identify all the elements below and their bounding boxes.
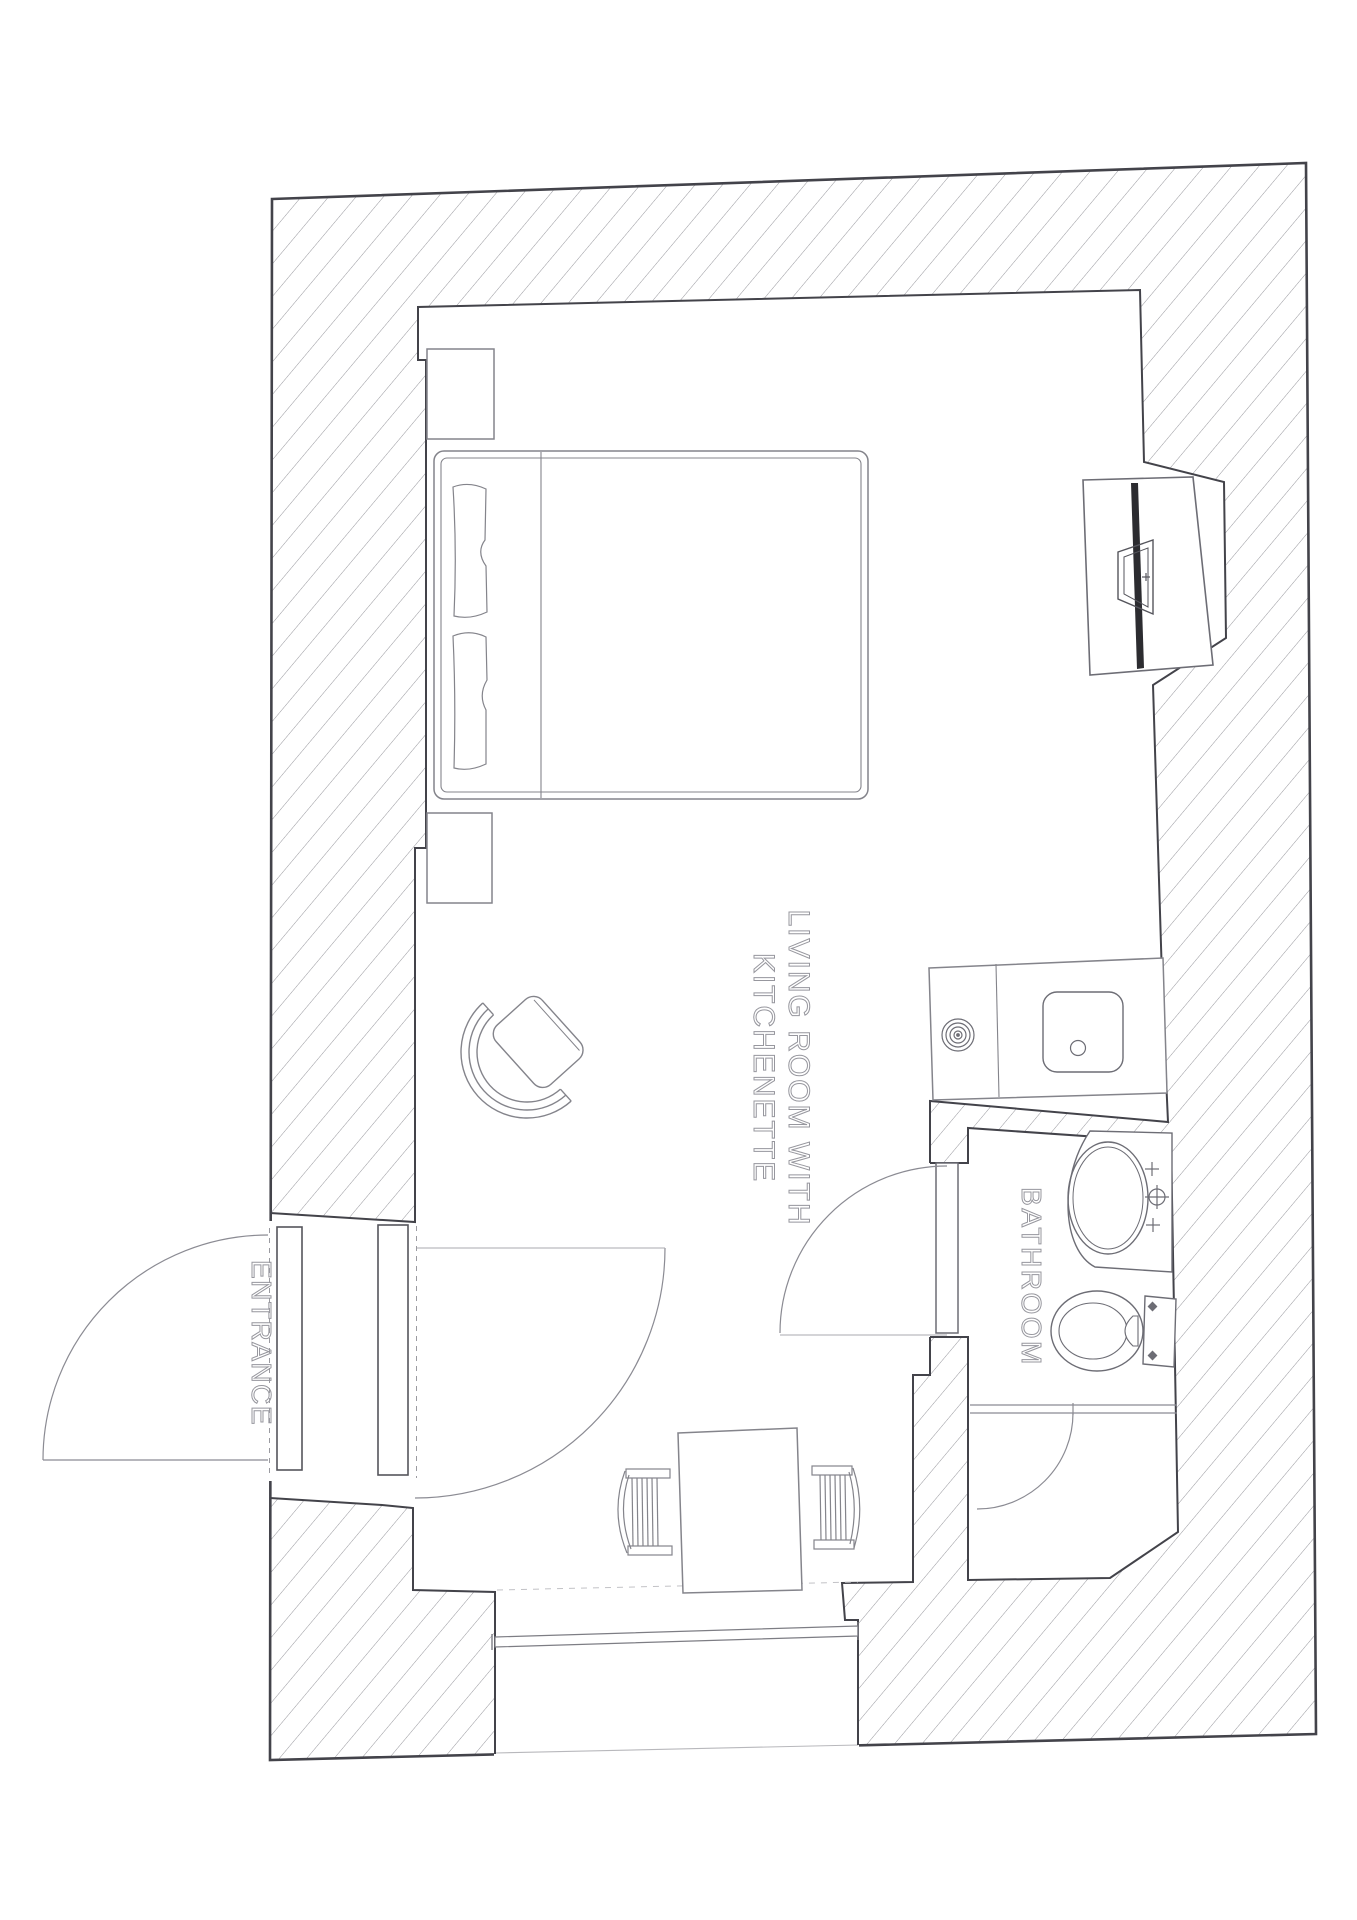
entrance-outer-swing-arc — [43, 1235, 268, 1460]
toilet — [1051, 1291, 1176, 1371]
floor-plan-page: LIVING ROOM WITH KITCHENETTE ENTRANCE BA… — [0, 0, 1357, 1920]
toilet-bowl-inner — [1059, 1303, 1127, 1359]
washbasin — [1068, 1131, 1172, 1272]
kitchen-counter — [929, 958, 1167, 1100]
entrance-jamb-outer — [277, 1227, 302, 1470]
nightstand-bottom — [427, 813, 492, 903]
floor-plan-drawing: LIVING ROOM WITH KITCHENETTE ENTRANCE BA… — [0, 0, 1357, 1920]
label-living-room-line2: KITCHENETTE — [747, 953, 780, 1183]
kitchenette — [929, 958, 1167, 1100]
nightstand-top — [427, 349, 494, 439]
entrance-jamb-inner — [378, 1225, 408, 1475]
dining-table — [678, 1428, 802, 1593]
bathroom-door-leaf — [936, 1163, 958, 1333]
desk-tv-unit — [1083, 477, 1213, 675]
label-entrance: ENTRANCE — [246, 1260, 277, 1426]
label-living-room-line1: LIVING ROOM WITH — [782, 910, 815, 1227]
label-bathroom: BATHROOM — [1016, 1187, 1047, 1367]
